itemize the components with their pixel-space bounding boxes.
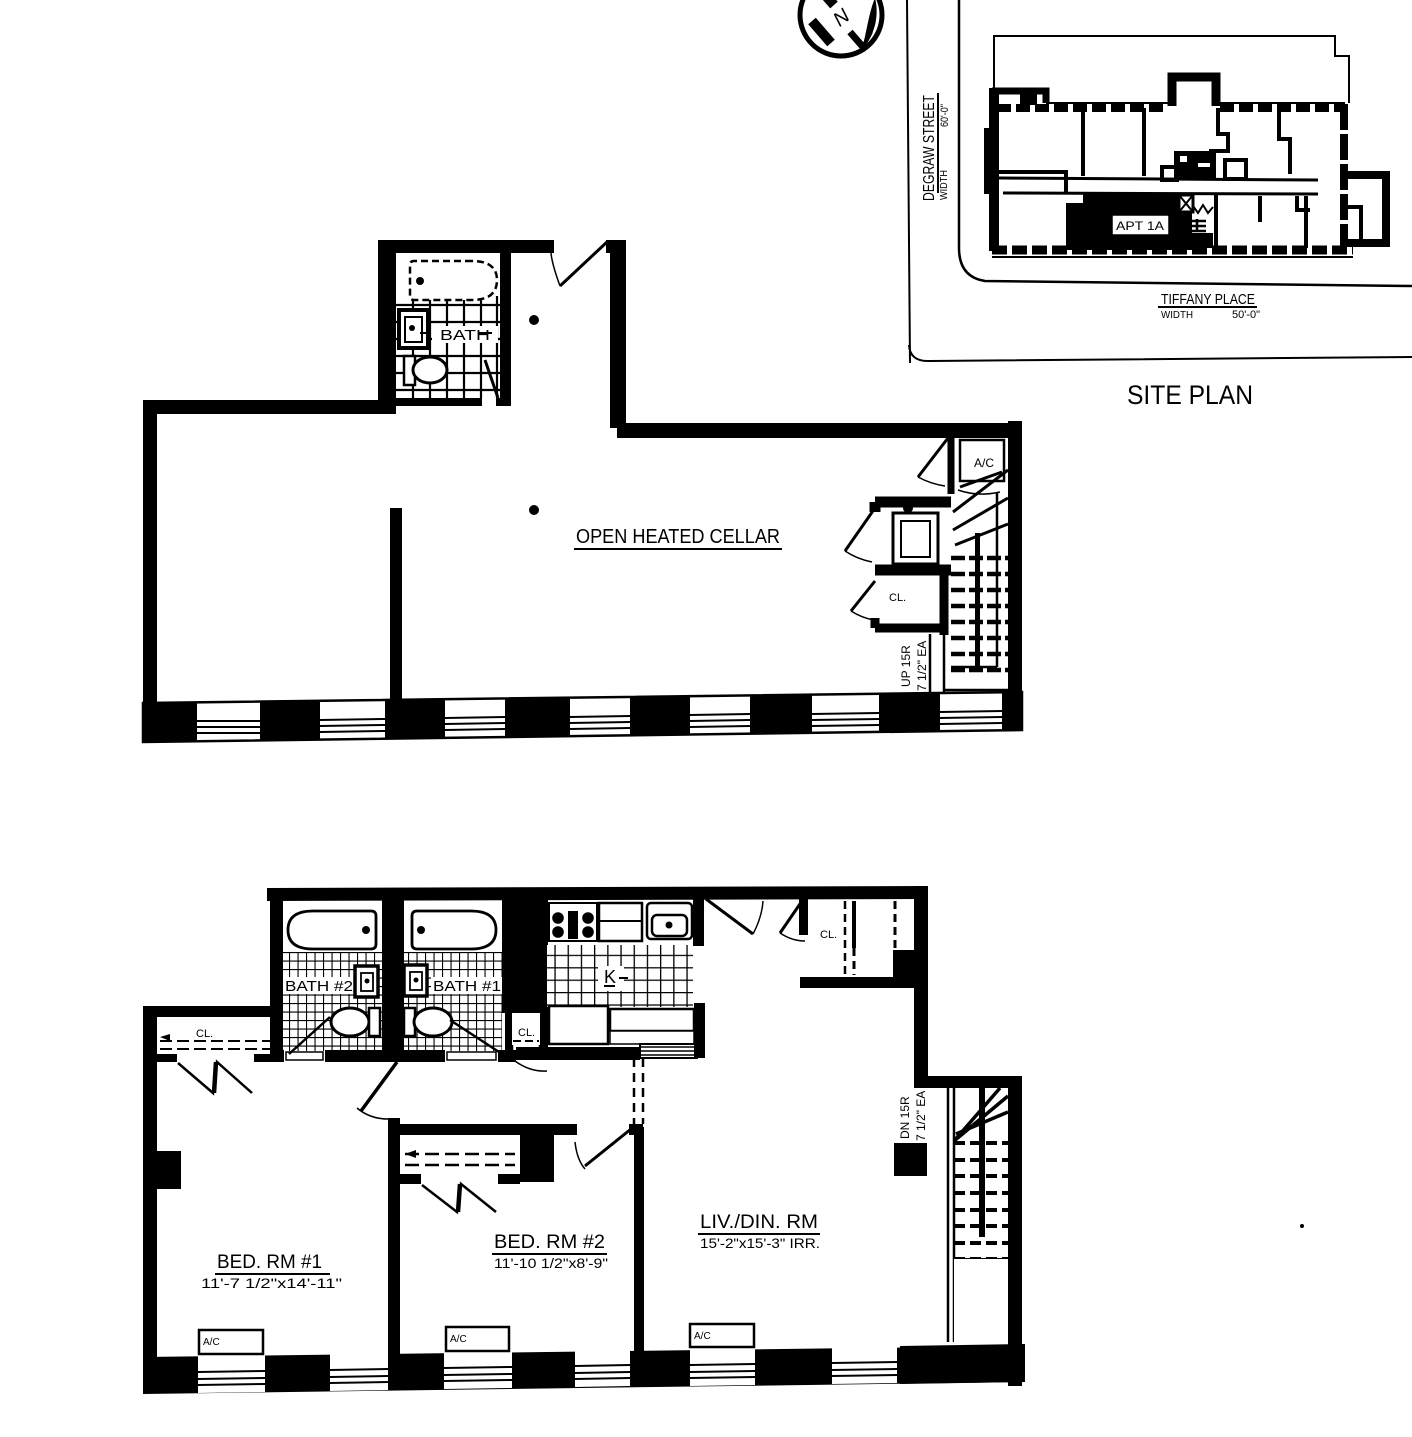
svg-text:WIDTH: WIDTH [1161, 310, 1193, 321]
svg-text:APT 1A: APT 1A [1116, 219, 1164, 233]
svg-text:CL.: CL. [518, 1027, 535, 1039]
svg-text:K: K [604, 967, 616, 987]
svg-text:BATH #1: BATH #1 [433, 978, 501, 995]
svg-text:11'-7 1/2"x14'-11": 11'-7 1/2"x14'-11" [201, 1275, 342, 1291]
svg-text:BED. RM #2: BED. RM #2 [494, 1232, 605, 1253]
svg-text:A/C: A/C [694, 1331, 711, 1342]
svg-text:TIFFANY PLACE: TIFFANY PLACE [1161, 291, 1255, 308]
svg-text:BED. RM #1: BED. RM #1 [217, 1252, 322, 1273]
svg-text:11'-10 1/2"x8'-9": 11'-10 1/2"x8'-9" [494, 1255, 608, 1271]
svg-text:LIV./DIN. RM: LIV./DIN. RM [700, 1212, 818, 1233]
svg-text:7 1/2" EA: 7 1/2" EA [914, 1091, 928, 1141]
svg-text:15'-2"x15'-3" IRR.: 15'-2"x15'-3" IRR. [700, 1235, 820, 1251]
svg-text:BATH: BATH [440, 327, 490, 344]
svg-text:CL.: CL. [889, 592, 906, 604]
svg-text:BATH #2: BATH #2 [285, 978, 353, 995]
svg-text:DEGRAW STREET: DEGRAW STREET [921, 95, 938, 201]
svg-text:CL.: CL. [820, 929, 837, 941]
svg-text:WIDTH: WIDTH [939, 170, 950, 200]
svg-text:A/C: A/C [203, 1337, 220, 1348]
svg-text:7 1/2" EA: 7 1/2" EA [915, 641, 929, 691]
svg-text:60'-0": 60'-0" [939, 104, 951, 127]
svg-text:CL.: CL. [196, 1028, 213, 1040]
svg-text:DN 15R: DN 15R [898, 1096, 912, 1139]
svg-text:50'-0": 50'-0" [1232, 309, 1260, 321]
svg-text:A/C: A/C [450, 1334, 467, 1345]
svg-text:SITE PLAN: SITE PLAN [1127, 380, 1253, 410]
svg-text:UP 15R: UP 15R [899, 645, 913, 687]
svg-text:OPEN HEATED CELLAR: OPEN HEATED CELLAR [576, 526, 780, 548]
svg-text:A/C: A/C [974, 456, 994, 470]
